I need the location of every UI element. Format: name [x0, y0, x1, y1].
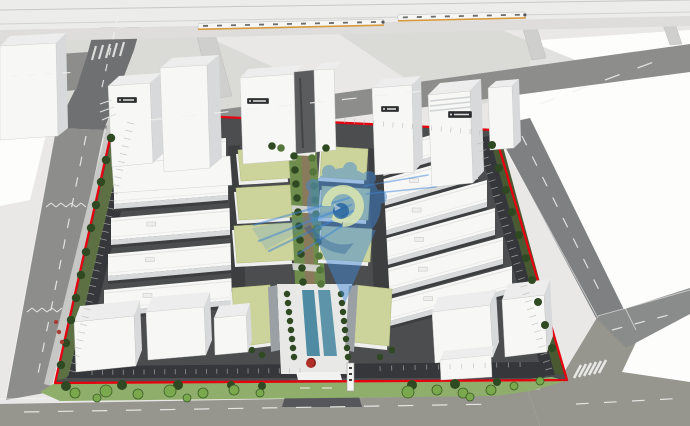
boundary-tree — [522, 254, 530, 262]
train-window — [487, 14, 492, 16]
boundary-tree — [541, 321, 549, 329]
warehouse-sw-3 — [214, 315, 248, 355]
courtyard-tree — [290, 345, 296, 351]
train-window — [417, 16, 422, 18]
roof-vent — [415, 237, 424, 241]
red-shrub — [60, 340, 64, 344]
boundary-tree — [515, 231, 523, 239]
lawn-tree — [61, 381, 71, 391]
lawn-shrub — [510, 382, 518, 390]
roof-vent — [418, 267, 427, 271]
courtyard-tree — [389, 347, 395, 353]
train-window — [231, 24, 236, 26]
boundary-tree — [87, 224, 95, 232]
axis-tree — [292, 180, 300, 188]
boundary-tree — [97, 178, 105, 186]
lawn-shrub — [93, 394, 101, 402]
axis-tree — [298, 264, 306, 272]
courtyard-tree — [249, 347, 255, 353]
roof-vent — [147, 222, 156, 226]
train-window — [403, 16, 408, 18]
boundary-tree — [534, 298, 542, 306]
train-window — [273, 23, 278, 25]
signage-logo-dot — [249, 100, 251, 102]
boundary-tree — [57, 361, 65, 369]
roof-vent — [409, 179, 418, 183]
courtyard-tree — [288, 327, 294, 333]
courtyard-tree — [345, 354, 351, 360]
lawn-tree — [117, 380, 127, 390]
courtyard-tree — [342, 327, 348, 333]
courtyard-tree — [343, 336, 349, 342]
architectural-rendering — [0, 0, 690, 426]
train-window — [431, 16, 436, 18]
lawn-tree — [450, 379, 460, 389]
lane-dash — [576, 403, 589, 404]
tower-1 — [108, 83, 153, 167]
lawn-shrub — [486, 385, 496, 395]
train-window — [203, 25, 208, 27]
courtyard-tree — [344, 345, 350, 351]
lawn-shrub — [133, 389, 143, 399]
boundary-tree — [72, 294, 80, 302]
train-window — [245, 24, 250, 26]
lane-dash — [604, 402, 617, 403]
lawn-shrub — [198, 388, 208, 398]
courtyard-tree — [286, 309, 292, 315]
lawn-tree — [493, 378, 501, 386]
axis-tree — [308, 154, 316, 162]
boundary-tree — [82, 248, 90, 256]
boundary-tree — [495, 164, 503, 172]
lawn-shrub — [466, 393, 474, 401]
axis-tree — [317, 280, 325, 288]
boundary-tree — [92, 201, 100, 209]
axis-tree — [290, 152, 298, 160]
gate-canopy — [296, 372, 342, 380]
courtyard-tree — [341, 318, 347, 324]
train-window — [357, 21, 362, 23]
lane-dash — [632, 400, 645, 401]
lawn-shrub — [100, 385, 112, 397]
signage-logo-dot — [383, 108, 385, 110]
tower-5 — [372, 85, 414, 175]
train-window — [217, 25, 222, 27]
office-right-slab — [314, 69, 336, 152]
boundary-tree — [67, 316, 75, 324]
roof-vent — [424, 297, 433, 301]
train-window — [445, 15, 450, 17]
train-window — [371, 21, 376, 23]
courtyard-tree — [291, 354, 297, 360]
roof-vent — [145, 258, 154, 262]
courtyard-tree — [377, 354, 383, 360]
roof-vent — [412, 208, 421, 212]
train-window — [329, 22, 334, 24]
boundary-tree — [488, 141, 496, 149]
boundary-tree — [548, 344, 556, 352]
signage-glyphs — [387, 108, 396, 110]
train-window — [343, 22, 348, 24]
green-roof — [236, 185, 292, 220]
signage-glyphs — [253, 100, 266, 102]
courtyard-tree — [289, 336, 295, 342]
lawn-shrub — [229, 385, 239, 395]
courtyard-tree — [284, 291, 290, 297]
roof-vent — [143, 293, 152, 297]
signage-logo-dot — [119, 99, 121, 101]
train-window — [259, 24, 264, 26]
warehouse-sw-2 — [146, 307, 206, 360]
boundary-tree — [107, 134, 115, 142]
axis-tree — [268, 142, 276, 150]
axis-tree — [315, 252, 323, 260]
train-window — [515, 14, 520, 16]
axis-tree — [322, 144, 330, 152]
courtyard-tree — [285, 300, 291, 306]
train-window — [459, 15, 464, 17]
lawn-shrub — [536, 377, 544, 385]
red-shrub — [54, 320, 58, 324]
office-left-slab — [240, 74, 296, 164]
train-window — [315, 22, 320, 24]
boundary-tree — [102, 156, 110, 164]
axis-tree — [293, 194, 301, 202]
boundary-tree — [502, 186, 510, 194]
boundary-tree — [77, 271, 85, 279]
office-core — [294, 70, 316, 154]
axis-tree — [299, 278, 307, 286]
green-roof — [352, 285, 392, 346]
train-window — [501, 14, 506, 16]
lawn-shrub — [256, 389, 264, 397]
train-window — [301, 23, 306, 25]
train-window — [287, 23, 292, 25]
boundary-tree — [508, 208, 516, 216]
lawn-shrub — [183, 394, 191, 402]
axis-tree — [277, 144, 285, 152]
tower-2 — [160, 65, 210, 172]
courtyard-tree — [259, 352, 265, 358]
courtyard-tree — [287, 318, 293, 324]
red-shrub — [57, 330, 61, 334]
axis-tree — [291, 166, 299, 174]
axis-tree — [309, 168, 317, 176]
lawn-shrub — [402, 386, 414, 398]
masterplan-scene — [0, 0, 690, 426]
building-nw — [0, 43, 58, 140]
lawn-shrub — [432, 385, 442, 395]
signage-logo-dot — [450, 114, 452, 116]
signage-glyphs — [123, 99, 134, 101]
courtyard-tree — [340, 309, 346, 315]
signage-glyphs — [454, 114, 469, 116]
tower-8 — [488, 86, 514, 150]
lane-dash — [660, 399, 673, 400]
axis-tree — [316, 266, 324, 274]
train-window — [473, 15, 478, 17]
lawn-shrub — [164, 385, 176, 397]
lawn-shrub — [70, 388, 80, 398]
boundary-tree — [528, 276, 536, 284]
